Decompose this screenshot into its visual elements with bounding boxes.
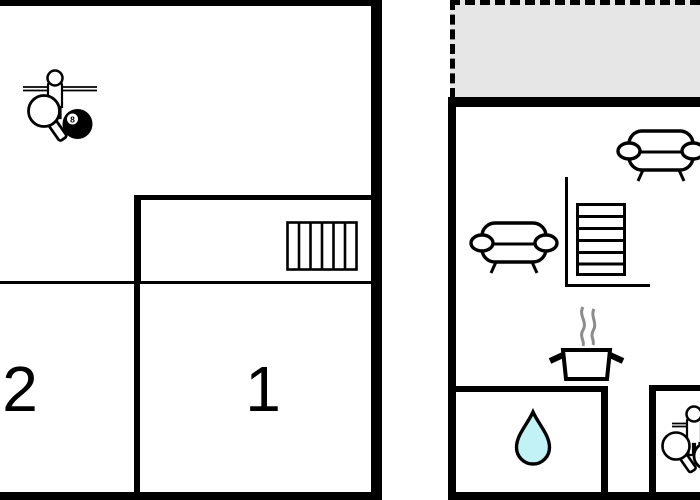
- room-1-label: 1: [233, 353, 293, 425]
- floor-plan: 8 2 1: [0, 0, 700, 500]
- stairs-icon: [576, 203, 626, 276]
- room-divider-horizontal-wall: [0, 281, 372, 284]
- game-room-icons: [655, 385, 700, 495]
- stairwell-horizontal-wall: [565, 284, 650, 287]
- inner-room-left-wall: [134, 195, 141, 283]
- left-building-bottom-wall: [0, 492, 382, 500]
- steam-icon: [592, 309, 595, 345]
- stairwell-vertical-wall: [565, 177, 568, 287]
- right-building-left-wall: [448, 97, 456, 500]
- terrace-bottom-wall: [448, 97, 700, 107]
- water-drop-icon: [513, 408, 553, 473]
- cooking-pot-icon: [545, 300, 635, 385]
- game-room-icons: 8: [20, 65, 105, 150]
- left-building-top-wall: [0, 0, 382, 6]
- room-divider-vertical-wall: [134, 281, 140, 492]
- terrace-area: [450, 0, 700, 98]
- room-2-label: 2: [0, 353, 50, 425]
- eight-ball-number: 8: [70, 114, 75, 124]
- steam-icon: [582, 307, 585, 346]
- bathroom-top-wall: [451, 386, 608, 392]
- sofa-icon: [617, 126, 700, 182]
- radiator-icon: [286, 221, 358, 271]
- left-building-right-wall: [371, 0, 382, 500]
- inner-room-top-wall: [134, 195, 372, 200]
- bathroom-right-wall: [601, 386, 608, 500]
- sofa-icon: [470, 218, 560, 274]
